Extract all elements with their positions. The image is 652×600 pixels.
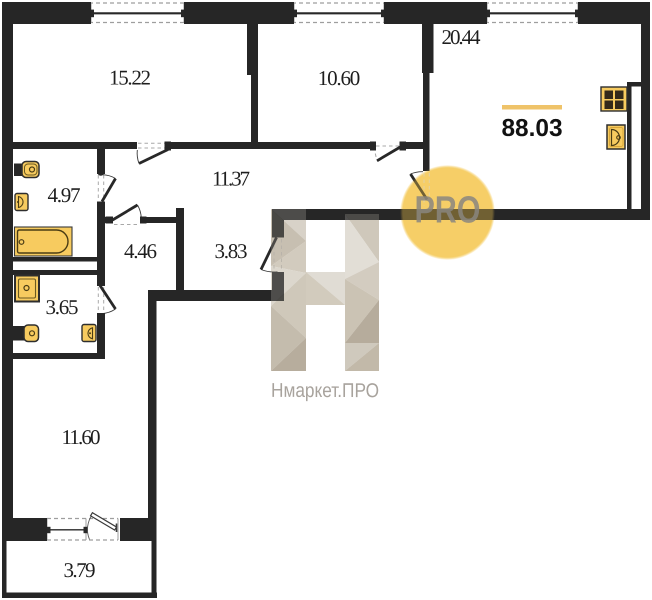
svg-text:3.79: 3.79 bbox=[63, 558, 95, 582]
svg-text:3.65: 3.65 bbox=[45, 295, 78, 319]
svg-text:11.37: 11.37 bbox=[212, 166, 250, 190]
svg-text:15.22: 15.22 bbox=[109, 65, 151, 89]
svg-text:10.60: 10.60 bbox=[318, 66, 361, 90]
svg-text:3.83: 3.83 bbox=[214, 239, 247, 263]
svg-text:88.03: 88.03 bbox=[501, 115, 562, 142]
svg-text:Нмаркет.ПРО: Нмаркет.ПРО bbox=[271, 380, 379, 402]
svg-text:4.46: 4.46 bbox=[124, 239, 157, 263]
svg-text:11.60: 11.60 bbox=[61, 425, 100, 449]
svg-text:4.97: 4.97 bbox=[47, 183, 80, 207]
svg-text:20.44: 20.44 bbox=[441, 25, 481, 49]
svg-text:PRO: PRO bbox=[414, 189, 480, 231]
